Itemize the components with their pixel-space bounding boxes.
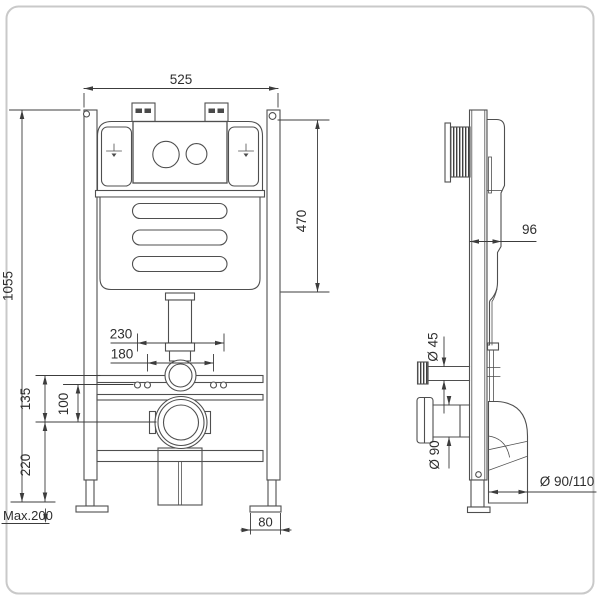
flush-pipe: [166, 293, 195, 361]
rail-mounting-hole: [84, 111, 90, 117]
outlet-flange: [417, 398, 470, 444]
dim-rail-to-outlet: 135: [18, 388, 33, 411]
waste-outlet: [150, 397, 211, 449]
dim-top-to-outlet: 470: [294, 210, 309, 233]
wc-frame-installation-drawing: 525 1055 135 220 100 230 180 Max.200: [0, 0, 600, 600]
adjustable-leg: [471, 480, 484, 507]
dim-frame-width: 525: [170, 72, 193, 87]
dimensions-side: 470 96 Ø 45 Ø 90 Ø 90/110: [278, 120, 596, 494]
foot-plate: [250, 506, 281, 512]
technical-drawing-canvas: 525 1055 135 220 100 230 180 Max.200: [0, 0, 600, 600]
dim-outlet-flange-diameter: Ø 90: [427, 440, 442, 469]
waste-elbow: [489, 402, 528, 504]
dim-holes-to-outlet: 100: [56, 393, 71, 416]
dim-frame-height: 1055: [1, 271, 16, 301]
adjustable-leg: [268, 480, 276, 506]
flush-pipe-flange: [165, 360, 196, 391]
flush-plate: [133, 122, 227, 184]
waste-duct: [158, 448, 202, 505]
dim-bolt-spacing-inner: 180: [111, 347, 134, 362]
adjustable-leg: [86, 480, 94, 506]
lower-crossbar: [97, 451, 263, 462]
hanger-brackets: [132, 103, 228, 122]
foot-plate: [76, 506, 108, 512]
cistern: [96, 122, 265, 290]
dim-foot-width: 80: [258, 515, 272, 530]
dim-bolt-spacing-outer: 230: [110, 327, 133, 342]
cistern-lid: [96, 191, 265, 198]
dim-flush-pipe-diameter: Ø 45: [426, 332, 441, 361]
front-view: [76, 103, 281, 512]
cistern-body: [100, 197, 260, 290]
foot-plate: [468, 507, 491, 513]
dim-frame-depth: 96: [522, 222, 537, 237]
leg-pin-hole: [476, 472, 482, 478]
dim-leg-adjustment: Max.200: [3, 508, 53, 523]
flush-pipe-connector: [418, 362, 470, 384]
dim-outlet-to-floor: 220: [18, 454, 33, 477]
water-inlet-connector: [445, 123, 470, 182]
rail-mounting-hole: [269, 113, 276, 120]
dim-waste-elbow-diameter: Ø 90/110: [540, 474, 595, 489]
cistern-profile: [487, 120, 505, 346]
